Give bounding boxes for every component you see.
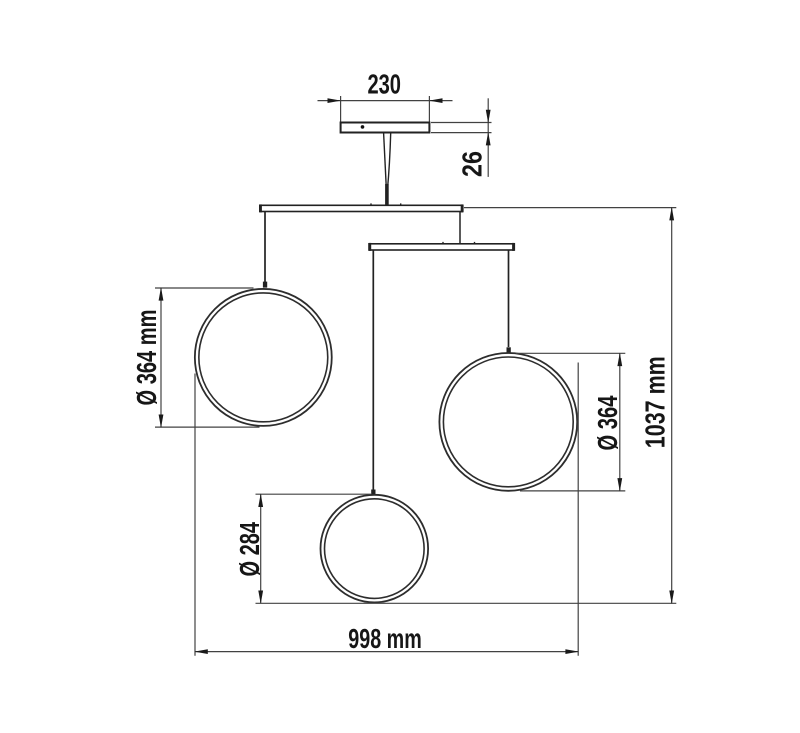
svg-text:26: 26 (457, 151, 488, 177)
svg-text:Ø 364: Ø 364 (592, 395, 623, 450)
svg-text:998 mm: 998 mm (348, 623, 422, 654)
svg-text:Ø 364 mm: Ø 364 mm (131, 310, 162, 406)
svg-text:1037 mm: 1037 mm (640, 356, 671, 448)
svg-text:Ø 284: Ø 284 (234, 522, 265, 577)
svg-text:230: 230 (367, 69, 401, 100)
